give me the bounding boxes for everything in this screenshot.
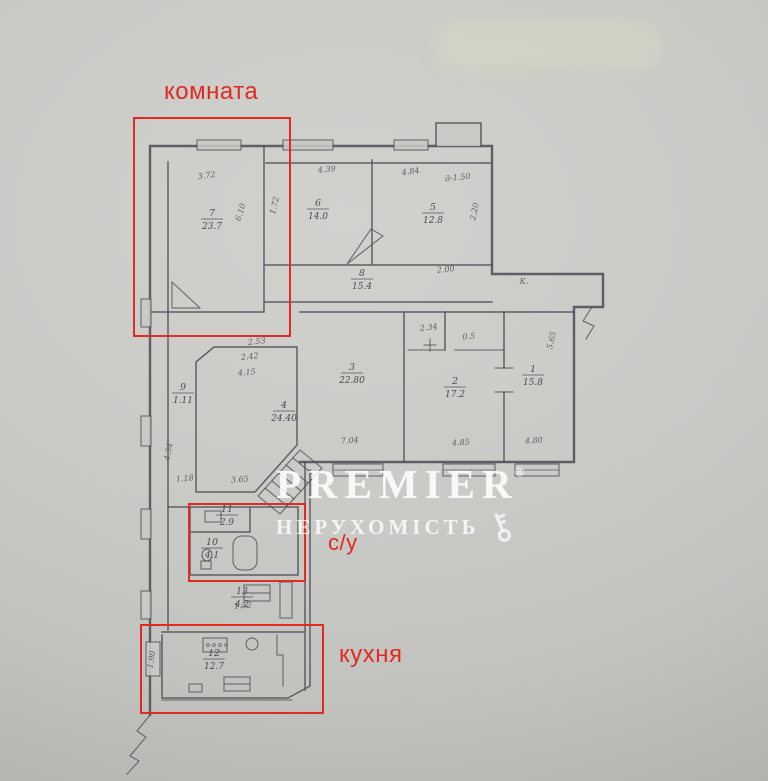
svg-text:24.40: 24.40 [270, 414, 297, 424]
svg-text:6: 6 [315, 198, 321, 209]
svg-text:2.53: 2.53 [246, 336, 266, 347]
scanned-floor-plan-photo: 723.7614.0512.8815.491.11424.40322.80217… [0, 0, 768, 781]
chimney-notch [436, 123, 481, 146]
svg-text:22.80: 22.80 [338, 376, 365, 386]
svg-text:1.11: 1.11 [173, 396, 193, 406]
svg-text:2: 2 [451, 376, 458, 387]
svg-text:4.85: 4.85 [451, 437, 470, 447]
svg-text:15.4: 15.4 [352, 282, 372, 292]
svg-text:17.2: 17.2 [445, 390, 465, 400]
svg-text:7.04: 7.04 [341, 435, 359, 445]
annotation-label-kitchen: кухня [339, 642, 403, 668]
svg-text:5: 5 [430, 202, 436, 213]
svg-text:д-1.50: д-1.50 [445, 172, 471, 184]
svg-text:12.8: 12.8 [423, 216, 443, 226]
watermark-brand: PREMIER® [276, 464, 524, 505]
svg-text:2.20: 2.20 [468, 202, 481, 222]
svg-text:1.18: 1.18 [176, 473, 195, 484]
svg-text:2.00: 2.00 [436, 264, 456, 275]
svg-text:4: 4 [280, 400, 287, 411]
annotation-box-kitchen [140, 624, 324, 714]
svg-text:5.65: 5.65 [545, 331, 558, 350]
svg-text:2.34: 2.34 [418, 322, 438, 333]
registered-trademark-icon: ® [515, 464, 525, 479]
closet-walls [408, 339, 513, 392]
svg-text:4.39: 4.39 [316, 164, 336, 175]
watermark-premier: PREMIER® НЕРУХОМІСТЬ [276, 464, 524, 544]
watermark-brand-text: PREMIER [276, 461, 519, 507]
key-icon [482, 506, 519, 547]
svg-text:3.65: 3.65 [231, 474, 249, 484]
watermark-subtitle-text: НЕРУХОМІСТЬ [276, 515, 480, 540]
hall-shelf [280, 582, 292, 618]
svg-text:1.52: 1.52 [234, 600, 252, 610]
svg-text:4.54: 4.54 [162, 442, 175, 462]
svg-text:4.84: 4.84 [400, 166, 420, 178]
annotation-box-room [133, 117, 291, 337]
svg-text:0.5: 0.5 [462, 332, 475, 342]
svg-text:14.0: 14.0 [308, 212, 328, 222]
svg-text:3: 3 [349, 362, 355, 373]
svg-text:4.80: 4.80 [524, 435, 543, 445]
wall-break-jag-corridor [583, 307, 594, 339]
annotation-label-room: комната [164, 79, 258, 105]
svg-text:1: 1 [530, 364, 536, 375]
watermark-subtitle: НЕРУХОМІСТЬ [276, 510, 524, 544]
svg-text:9: 9 [180, 382, 186, 393]
svg-text:13: 13 [236, 586, 248, 597]
svg-text:4.15: 4.15 [237, 367, 257, 378]
svg-text:2.42: 2.42 [239, 351, 259, 362]
svg-text:К.: К. [519, 277, 529, 286]
svg-text:15.8: 15.8 [523, 378, 543, 388]
wall-break-jag-bottom [127, 715, 150, 774]
svg-text:8: 8 [359, 268, 365, 279]
door-swing-corridor [347, 229, 383, 264]
